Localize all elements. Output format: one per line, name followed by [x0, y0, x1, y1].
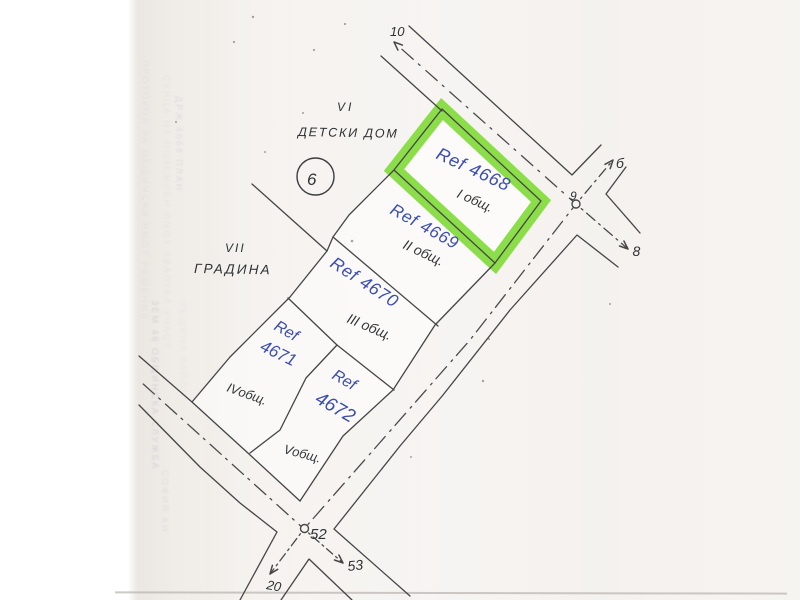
svg-text:10: 10 [390, 24, 405, 39]
svg-text:20: 20 [264, 577, 283, 595]
svg-text:VI: VI [337, 100, 354, 114]
svg-text:52: 52 [310, 526, 327, 543]
svg-text:ДЕТСКИ ДОМ: ДЕТСКИ ДОМ [296, 125, 399, 141]
svg-text:8: 8 [633, 243, 641, 259]
svg-text:53: 53 [347, 556, 364, 574]
svg-text:9: 9 [570, 189, 577, 203]
svg-text:6: 6 [307, 170, 317, 189]
svg-text:б: б [616, 155, 625, 171]
svg-text:VII: VII [225, 241, 246, 255]
svg-text:ГРАДИНА: ГРАДИНА [194, 261, 272, 277]
